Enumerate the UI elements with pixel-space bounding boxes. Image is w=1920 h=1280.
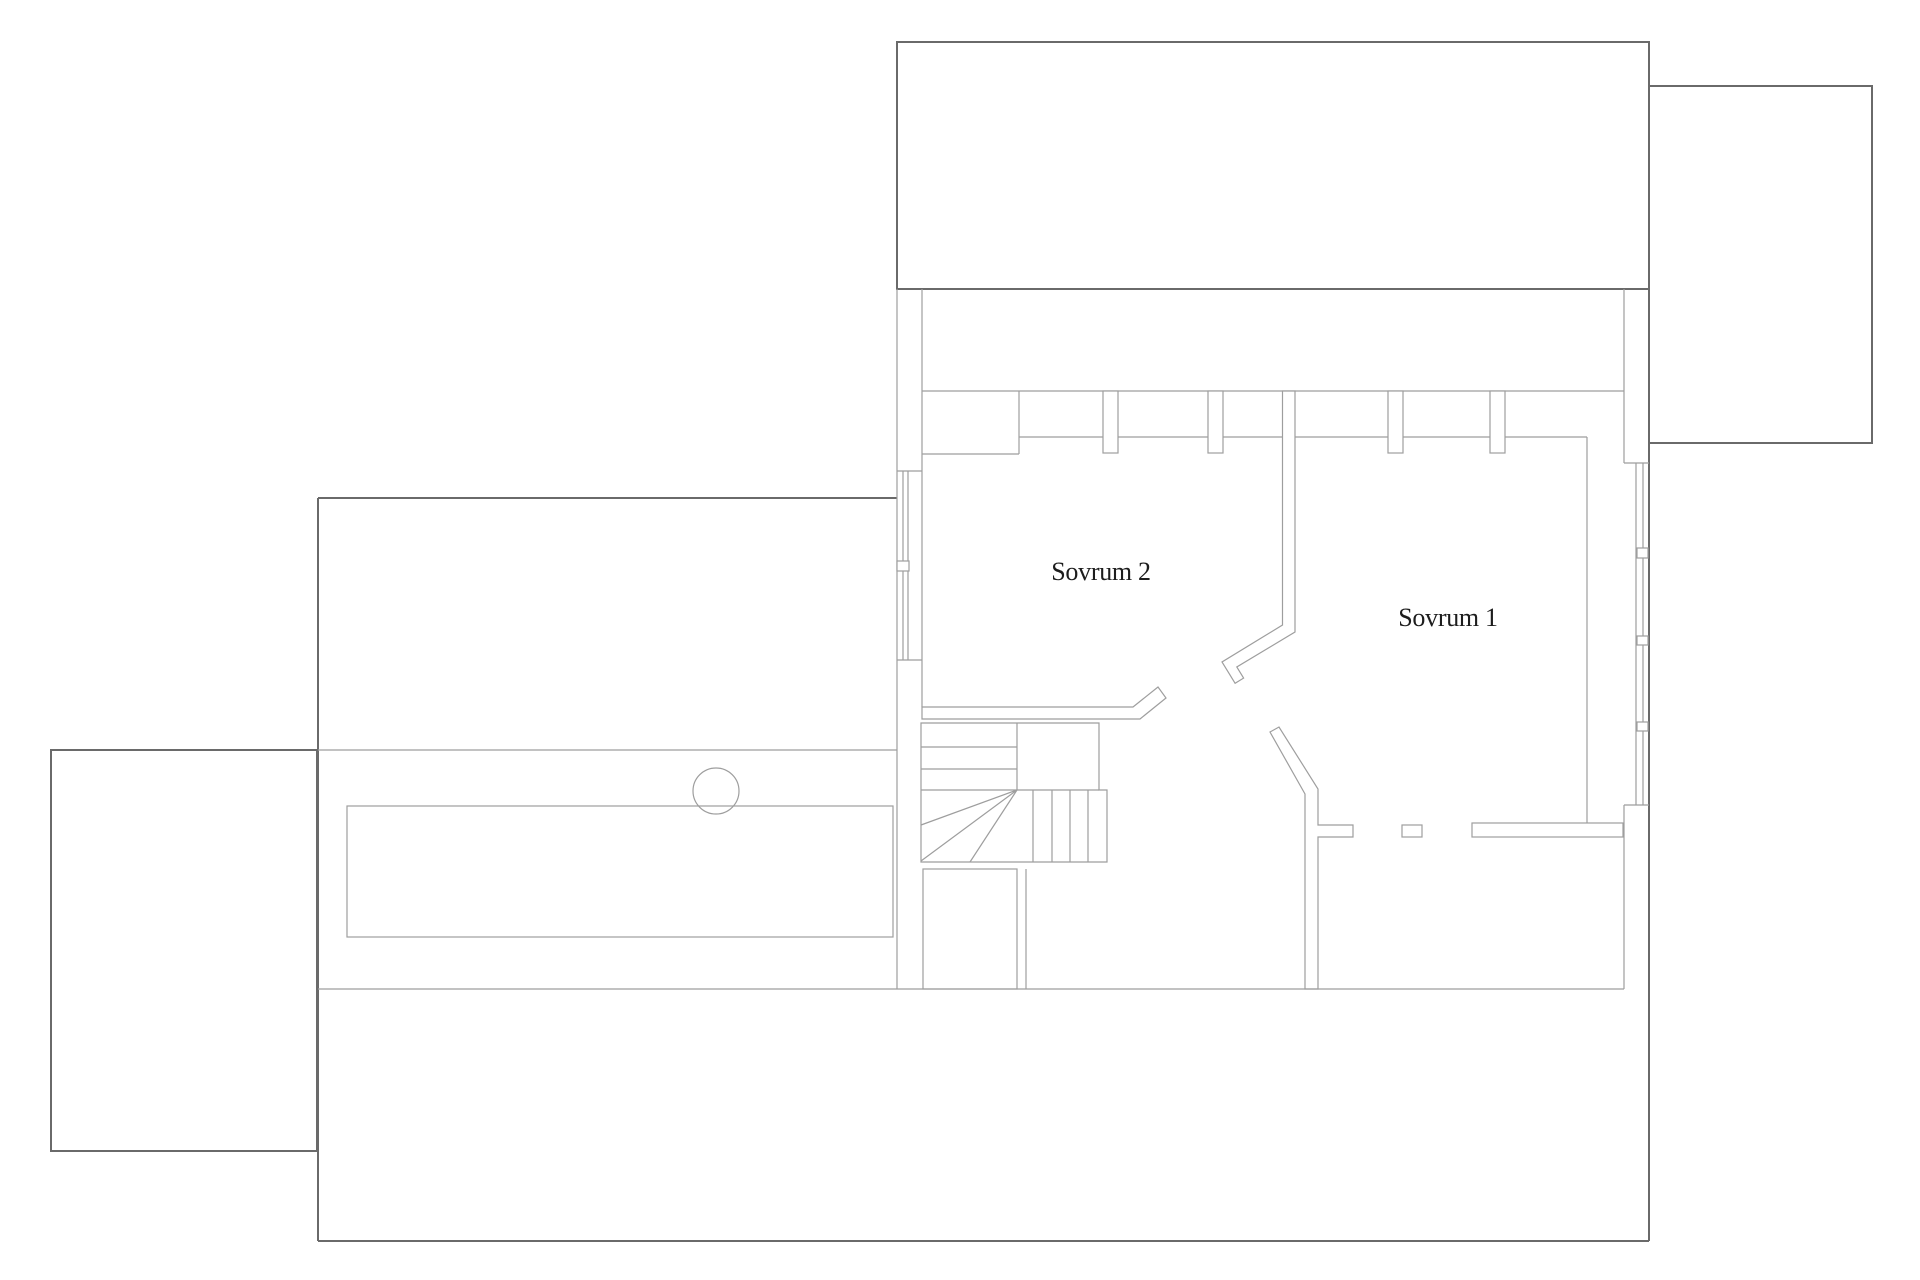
top-terrace-outline — [897, 42, 1649, 289]
right-balcony-outline — [1649, 86, 1872, 443]
floor-plan-canvas: Sovrum 2 Sovrum 1 — [0, 0, 1920, 1280]
sovrum1-door-jamb — [1402, 825, 1422, 837]
room-label-sovrum-2: Sovrum 2 — [1051, 557, 1150, 587]
left-window-handle — [897, 561, 909, 571]
chimney-circle — [693, 768, 739, 814]
right-window-handle-2 — [1637, 636, 1648, 645]
roof-post-3 — [1388, 391, 1403, 453]
roof-post-4 — [1490, 391, 1505, 453]
exterior-outline — [51, 42, 1872, 1241]
sovrum1-south-wall — [1472, 823, 1623, 837]
stair-closet — [923, 869, 1017, 989]
right-window-handle-1 — [1637, 548, 1648, 558]
stair-treads-upper — [921, 747, 1017, 769]
floor-plan-drawing — [0, 0, 1920, 1280]
stair-treads-lower — [1033, 790, 1088, 862]
interior-walls — [318, 289, 1649, 989]
stair-winder-treads — [921, 790, 1017, 862]
roof-post-1 — [1103, 391, 1118, 453]
staircase — [921, 723, 1107, 862]
bedroom-divider-wall — [1222, 391, 1295, 683]
left-wing-storage-unit — [347, 806, 893, 937]
room-label-sovrum-1: Sovrum 1 — [1398, 603, 1497, 633]
right-window-handle-3 — [1637, 722, 1648, 731]
sovrum2-south-wall — [922, 687, 1166, 719]
roof-post-2 — [1208, 391, 1223, 453]
hall-angled-wall — [1270, 727, 1353, 989]
left-balcony-outline — [51, 750, 317, 1151]
right-window-mullions — [1636, 463, 1643, 805]
